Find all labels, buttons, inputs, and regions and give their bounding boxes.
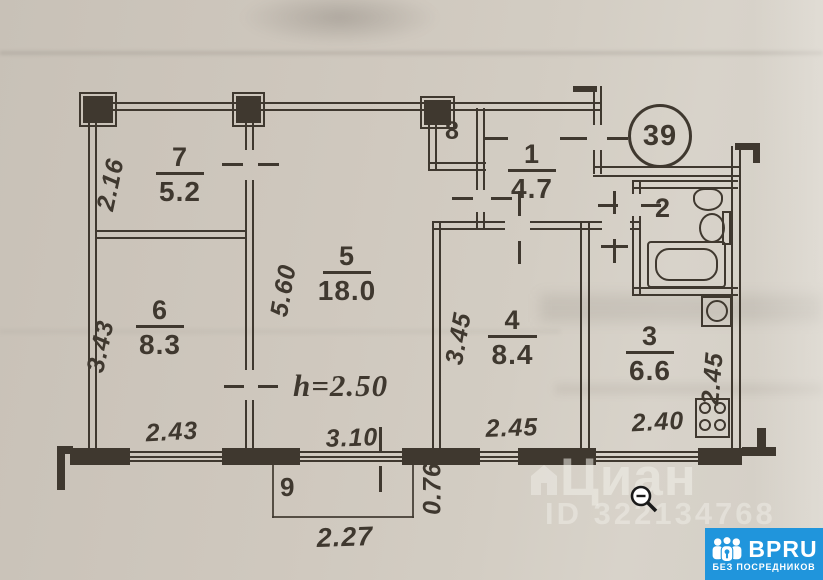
wall-end-cap (753, 143, 760, 163)
room-1-area: 4.7 (482, 174, 582, 203)
wall-segment (88, 102, 97, 458)
wall-end-cap (757, 428, 766, 448)
room-5-number: 5 (323, 242, 371, 274)
room-5-label: 5 18.0 (293, 242, 401, 306)
wall-segment (90, 102, 602, 111)
bpru-badge: BPRU БЕЗ ПОСРЕДНИКОВ (705, 528, 823, 580)
balcony-door-mark (379, 466, 382, 492)
door-opening-mark (601, 245, 628, 248)
wall-segment (432, 221, 505, 230)
dim-balcony-bottom: 2.27 (299, 520, 390, 554)
room-9-number: 9 (280, 472, 294, 503)
wall-segment (96, 230, 246, 239)
kitchen-sink-bowl (706, 300, 728, 322)
ceiling-height-note: h=2.50 (293, 368, 388, 404)
room-6-label: 6 8.3 (110, 296, 210, 360)
room-6-area: 8.3 (110, 330, 210, 359)
dim-room3-right: 2.45 (696, 342, 731, 414)
balcony-wall (272, 516, 414, 518)
people-group-icon (710, 536, 744, 562)
wall-segment (530, 221, 602, 230)
room-1-number: 1 (508, 140, 556, 172)
dim-room5-bottom: 3.10 (312, 423, 393, 455)
room-3-label: 3 6.6 (600, 322, 700, 386)
bpru-tagline: БЕЗ ПОСРЕДНИКОВ (713, 563, 816, 572)
wall-pier (222, 448, 300, 465)
room-7-label: 7 5.2 (130, 143, 230, 207)
door-opening-mark (598, 204, 618, 207)
dim-room4-bottom: 2.45 (472, 413, 553, 445)
dim-room6-bottom: 2.43 (131, 416, 212, 449)
wall-segment (245, 400, 254, 452)
wall-segment (632, 287, 738, 296)
wall-segment (731, 146, 741, 455)
paper-fold-line (0, 51, 823, 55)
wall-segment (632, 180, 641, 194)
door-opening-mark (607, 137, 628, 140)
bathtub-inner (655, 248, 718, 281)
balcony-wall (272, 463, 274, 518)
dim-room3-bottom: 2.40 (617, 406, 698, 439)
stove-burner (714, 419, 726, 431)
door-opening-mark (518, 241, 521, 264)
room-7-number: 7 (156, 143, 204, 175)
room-3-number: 3 (626, 322, 674, 354)
column (83, 96, 113, 123)
floorplan-image[interactable]: 7 5.2 6 8.3 5 18.0 4 8.4 3 6.6 1 4.7 8 2… (0, 0, 823, 580)
column (236, 96, 261, 123)
room-5-area: 18.0 (293, 276, 401, 305)
toilet-tank-icon (722, 211, 731, 245)
wall-end-cap (742, 447, 776, 456)
door-opening-mark (613, 239, 616, 263)
window (130, 451, 222, 462)
door-opening-mark (613, 191, 616, 214)
wall-segment (593, 166, 740, 177)
wall-segment (632, 216, 641, 296)
apartment-number-circle: 39 (628, 104, 692, 168)
wall-segment (245, 180, 254, 370)
room-6-number: 6 (136, 296, 184, 328)
door-opening-mark (452, 197, 473, 200)
window (480, 451, 518, 462)
wall-segment (632, 180, 738, 189)
door-opening-mark (258, 163, 279, 166)
balcony-wall (412, 463, 414, 518)
room-7-area: 5.2 (130, 177, 230, 206)
stove-burner (699, 419, 711, 431)
room-1-label: 1 4.7 (482, 140, 582, 204)
apartment-number: 39 (643, 120, 677, 153)
wall-pier (70, 448, 130, 465)
cian-house-icon (527, 462, 561, 498)
wall-pier (698, 448, 742, 465)
paper-edge-light (753, 0, 823, 580)
wall-segment (593, 86, 602, 125)
room-4-number: 4 (488, 306, 536, 338)
zoom-out-magnifier-icon (628, 483, 662, 517)
wall-segment (580, 221, 590, 455)
room-8-number: 8 (445, 117, 459, 146)
paper-smudge (240, 0, 440, 45)
room-2-number: 2 (655, 193, 670, 224)
dim-room5-left: 5.60 (264, 254, 305, 328)
bpru-badge-row: BPRU (710, 536, 817, 562)
bpru-brand-text: BPRU (748, 538, 817, 561)
wall-end-cap (57, 446, 65, 490)
sink-icon (693, 188, 723, 211)
room-4-area: 8.4 (460, 340, 565, 369)
door-opening-mark (224, 385, 244, 388)
room-3-area: 6.6 (600, 356, 700, 385)
door-opening-mark (258, 385, 278, 388)
dim-balcony-side: 0.76 (419, 454, 448, 524)
wall-segment (432, 221, 441, 455)
